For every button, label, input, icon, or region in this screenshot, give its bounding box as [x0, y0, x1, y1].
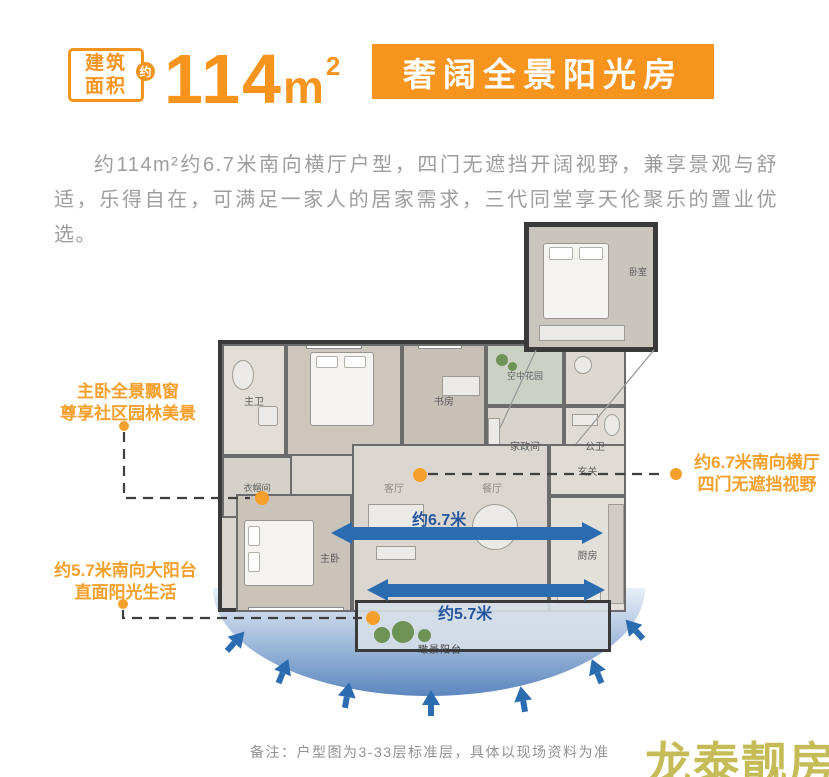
wardrobe-icon	[539, 325, 625, 341]
arrow-tail	[633, 629, 645, 641]
arrow-tail	[342, 696, 350, 708]
arrow-tail	[595, 672, 605, 684]
arrow-tail	[225, 641, 237, 653]
arrow-head	[512, 685, 532, 703]
plant-icon	[392, 621, 414, 643]
room-study: 书房	[402, 344, 486, 456]
floorplan-outline: 主卫 书房 空中花园	[218, 340, 626, 612]
room-label: 书房	[434, 393, 454, 408]
arrow-head	[338, 681, 358, 699]
room-label: 主卫	[244, 393, 264, 408]
arrow-tail	[520, 700, 528, 712]
room-label: 公卫	[585, 438, 605, 453]
area-number: 114	[164, 40, 283, 118]
room-laundry	[564, 344, 626, 406]
pillow-icon	[248, 526, 260, 546]
toilet-icon	[604, 414, 620, 436]
toilet-icon	[232, 360, 254, 390]
intro-paragraph: 约114m²约6.7米南向横厅户型，四门无遮挡开阔视野，兼享景观与舒适，乐得自在…	[54, 148, 778, 253]
callout-south-hall: 约6.7米南向横厅 四门无遮挡视野	[686, 452, 828, 496]
approx-circle-badge: 约	[136, 62, 155, 81]
area-value: 114m2	[164, 30, 342, 123]
room-bedroom	[286, 344, 402, 456]
pillow-icon	[344, 356, 366, 368]
dimension-label-living: 约6.7米	[412, 506, 466, 530]
floorplan: 主卫 书房 空中花园	[218, 340, 626, 652]
callout-line: 约6.7米南向横厅	[686, 452, 828, 474]
room-label: 餐厅	[482, 480, 502, 495]
room-label: 家政间	[510, 438, 540, 453]
window-icon	[418, 344, 462, 349]
area-badge-line1: 建筑	[85, 52, 127, 75]
wind-arrow-icon	[583, 656, 610, 689]
window-icon	[306, 344, 362, 349]
room-label: 衣帽间	[241, 481, 272, 494]
pillow-icon	[248, 552, 260, 572]
room-sky-garden: 空中花园	[486, 344, 564, 406]
room-master-bath: 主卫	[222, 344, 286, 456]
disclaimer-note: 备注：户型图为3-33层标准层，具体以现场资料为准	[250, 742, 610, 762]
callout-line: 约5.7米南向大阳台	[28, 560, 223, 582]
dimension-arrow-balcony	[388, 584, 584, 597]
arrow-tail	[428, 705, 434, 716]
area-badge-line2: 面积	[85, 75, 127, 98]
dimension-label-balcony: 约5.7米	[438, 600, 492, 624]
pillow-icon	[316, 356, 338, 368]
callout-dot	[670, 468, 682, 480]
callout-line: 主卧全景飘窗	[38, 381, 218, 403]
tv-cabinet-icon	[376, 546, 416, 560]
callout-line: 四门无遮挡视野	[686, 474, 828, 496]
arrow-head	[422, 690, 440, 705]
room-label: 玄关	[578, 463, 598, 478]
callout-master-bay-window: 主卧全景飘窗 尊享社区园林美景	[38, 381, 218, 425]
area-superscript: 2	[326, 51, 342, 81]
room-label: 客厅	[384, 480, 404, 495]
room-label: 主卧	[320, 550, 340, 565]
callout-line: 直面阳光生活	[28, 582, 223, 604]
callout-south-balcony: 约5.7米南向大阳台 直面阳光生活	[28, 560, 223, 604]
arrow-tail	[276, 672, 286, 684]
plant-icon	[496, 354, 508, 366]
wind-arrow-icon	[422, 690, 440, 718]
poster-canvas: 建筑 面积 约 114m2 奢阔全景阳光房 约114m²约6.7米南向横厅户型，…	[0, 0, 829, 777]
room-label: 卧室	[629, 265, 647, 278]
wind-arrow-icon	[512, 685, 535, 716]
room-master-bedroom: 主卧	[236, 494, 352, 612]
pillow-icon	[579, 247, 603, 260]
room-label: 瞰景阳台	[418, 641, 462, 656]
watermark-logo: 龙泰靓房	[645, 728, 829, 777]
headline-banner: 奢阔全景阳光房	[372, 44, 714, 99]
plant-icon	[374, 627, 390, 643]
sink-icon	[572, 414, 598, 426]
bay-window-icon	[248, 607, 344, 612]
wind-arrow-icon	[336, 681, 359, 712]
bedroom-detail-inset: 卧室	[524, 222, 658, 352]
area-unit: m	[283, 61, 326, 113]
room-label: 厨房	[578, 547, 598, 562]
room-label: 空中花园	[507, 369, 543, 382]
washer-icon	[574, 356, 592, 374]
callout-line: 尊享社区园林美景	[38, 403, 218, 425]
dimension-arrow-living	[352, 527, 582, 540]
sink-icon	[258, 406, 278, 426]
area-badge: 建筑 面积	[68, 48, 144, 102]
kitchen-counter-icon	[608, 504, 624, 604]
pillow-icon	[549, 247, 573, 260]
